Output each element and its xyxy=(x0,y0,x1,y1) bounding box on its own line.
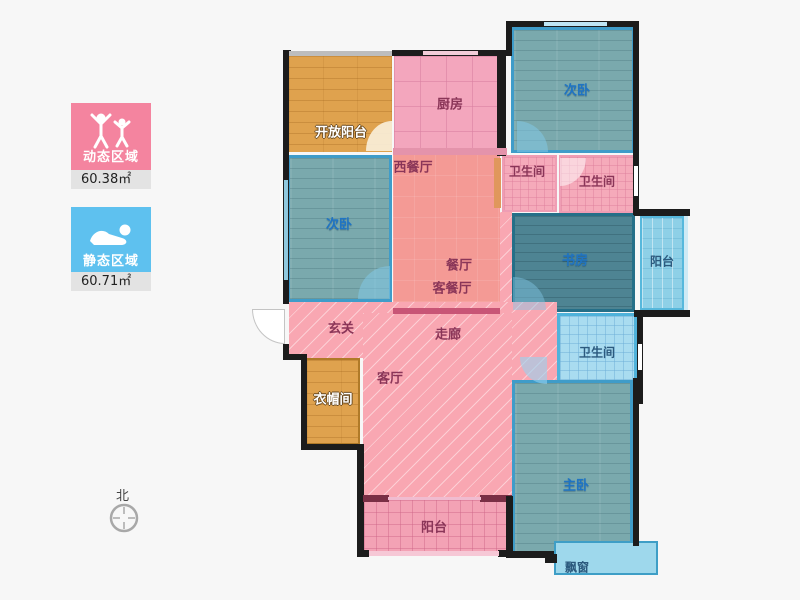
room-dining-label: 餐厅 xyxy=(446,255,472,274)
door-leaf xyxy=(494,158,501,208)
dynamic-area-card[interactable]: 动态区域 xyxy=(71,103,151,170)
room-balcony-right-label: 阳台 xyxy=(650,253,674,270)
entry-door-arc xyxy=(252,309,285,344)
balcony-railing xyxy=(289,51,393,56)
wall xyxy=(633,21,639,157)
bedroom-left-window xyxy=(284,180,288,280)
room-cloakroom-label: 衣帽间 xyxy=(313,389,352,408)
balcony-sliding-door xyxy=(388,497,481,500)
room-master-bedroom-label: 主卧 xyxy=(563,475,589,494)
dancing-people-icon xyxy=(85,111,137,149)
balcony-bottom-railing xyxy=(369,551,499,556)
wall xyxy=(497,50,506,156)
room-open-balcony-label: 开放阳台 xyxy=(315,122,367,141)
kitchen-window xyxy=(423,51,478,55)
wall xyxy=(363,495,389,502)
wall xyxy=(301,354,307,450)
wall xyxy=(357,550,369,557)
room-kitchen-label: 厨房 xyxy=(437,94,463,113)
room-bathroom-3-label: 卫生间 xyxy=(579,344,615,361)
balcony-right-window xyxy=(684,216,688,310)
dynamic-area-value: 60.38㎡ xyxy=(71,170,151,189)
wall xyxy=(393,148,507,155)
wall xyxy=(545,554,557,563)
wall xyxy=(634,310,690,317)
room-living-label: 客厅 xyxy=(377,368,403,387)
sleeping-person-icon xyxy=(85,215,137,251)
room-bedroom-2-left-label: 次卧 xyxy=(326,214,352,233)
room-master-bedroom[interactable] xyxy=(512,380,633,555)
static-area-card[interactable]: 静态区域 xyxy=(71,207,151,274)
room-west-dining-label: 西餐厅 xyxy=(393,157,432,176)
wall xyxy=(506,21,512,56)
bathroom-3-window xyxy=(638,344,642,370)
room-study-label: 书房 xyxy=(562,250,588,269)
bedroom-window xyxy=(544,22,607,26)
corridor-spur[interactable] xyxy=(500,212,512,312)
compass-icon xyxy=(108,502,140,534)
room-bathroom-2-label: 卫生间 xyxy=(579,173,615,190)
static-area-label: 静态区域 xyxy=(83,250,139,269)
room-balcony-bottom-label: 阳台 xyxy=(421,517,447,536)
wall xyxy=(506,496,513,558)
room-bedroom-2-top-label: 次卧 xyxy=(564,80,590,99)
static-area-value: 60.71㎡ xyxy=(71,272,151,291)
bathroom-2-window xyxy=(634,166,638,196)
wall xyxy=(301,444,363,450)
room-bay-window-label: 飘窗 xyxy=(565,559,589,576)
room-corridor-label: 走廊 xyxy=(435,324,461,343)
wall xyxy=(393,308,500,314)
wall xyxy=(634,209,690,216)
room-entry-label: 玄关 xyxy=(328,318,354,337)
room-living-dining-label: 客餐厅 xyxy=(432,278,471,297)
room-bathroom-1-label: 卫生间 xyxy=(509,163,545,180)
